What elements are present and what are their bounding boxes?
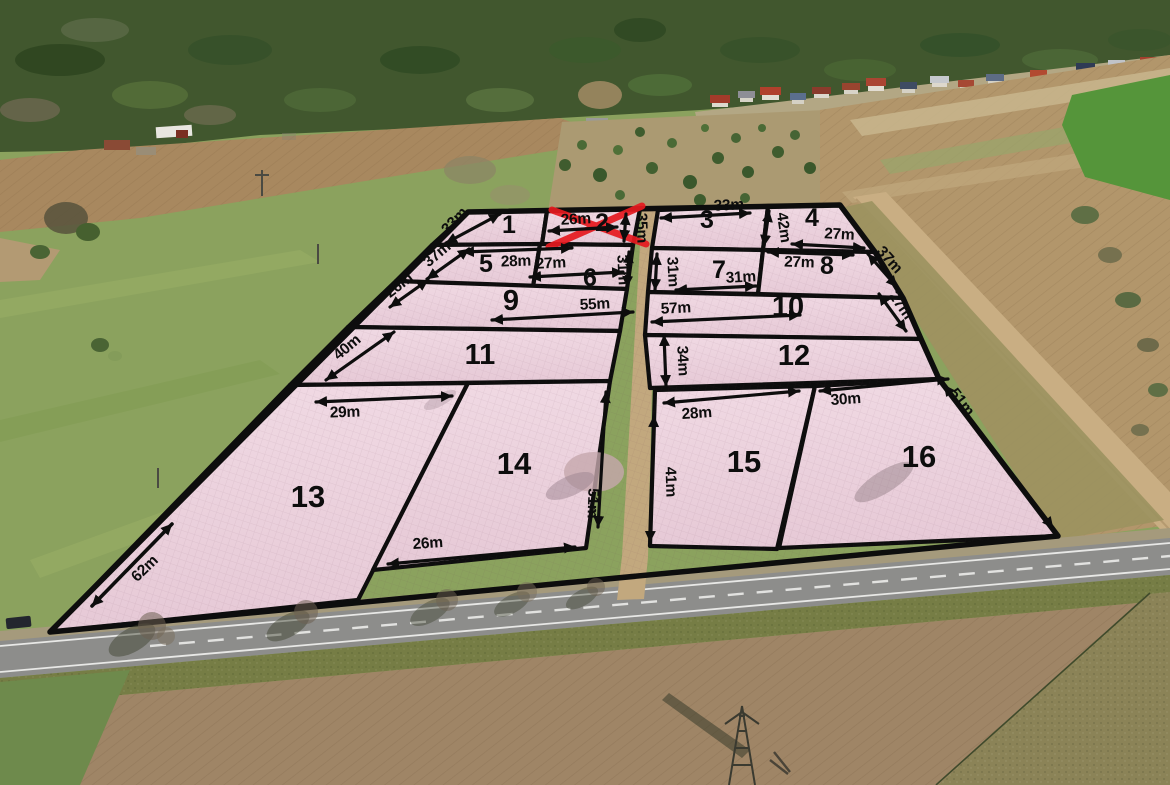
plot-9-number: 9	[503, 285, 519, 317]
plot-11-number: 11	[465, 339, 496, 371]
dim-label: 29m	[329, 403, 360, 421]
plot-3-number: 3	[700, 206, 714, 234]
aerial-plot-map: 33m 26m 35m 33m 42m 27m 37m 28m	[0, 0, 1170, 785]
dim-label: 28m	[500, 252, 531, 270]
plot-10-number: 10	[772, 291, 804, 323]
plot-13-number: 13	[291, 479, 325, 514]
plot-15-number: 15	[727, 444, 761, 479]
dim-label: 51m	[583, 488, 601, 519]
dim-label: 31m	[663, 256, 682, 287]
dim-label: 33m	[713, 196, 744, 215]
dim-label: 31m	[613, 254, 632, 285]
dim-label: 34m	[673, 345, 692, 376]
plot-map-svg: 33m 26m 35m 33m 42m 27m 37m 28m	[0, 0, 1170, 785]
dim-label: 26m	[412, 534, 443, 553]
plot-16-number: 16	[902, 439, 936, 474]
dim-label: 27m	[824, 225, 855, 244]
dim-label: 27m	[535, 254, 566, 273]
dim-label: 27m	[784, 253, 815, 271]
plot-5-number: 5	[479, 250, 493, 278]
plot-8-number: 8	[820, 252, 834, 280]
dim-label: 28m	[681, 404, 712, 423]
dim-label: 55m	[579, 295, 610, 314]
dim-label: 35m	[632, 212, 650, 243]
plot-14-number: 14	[497, 446, 532, 481]
plot-12-number: 12	[778, 340, 810, 372]
plot-6-number: 6	[583, 264, 597, 292]
plot-2-number: 2	[595, 209, 609, 237]
dim-plot6-side: 31m	[613, 252, 632, 287]
plot-7-number: 7	[712, 256, 726, 284]
dim-label: 30m	[830, 390, 861, 409]
dim-label: 57m	[660, 299, 691, 318]
plot-4-number: 4	[805, 204, 819, 232]
dim-label: 31m	[725, 268, 756, 287]
dim-label: 26m	[560, 210, 591, 229]
dim-label: 41m	[661, 466, 679, 497]
plot-1-number: 1	[502, 211, 516, 239]
